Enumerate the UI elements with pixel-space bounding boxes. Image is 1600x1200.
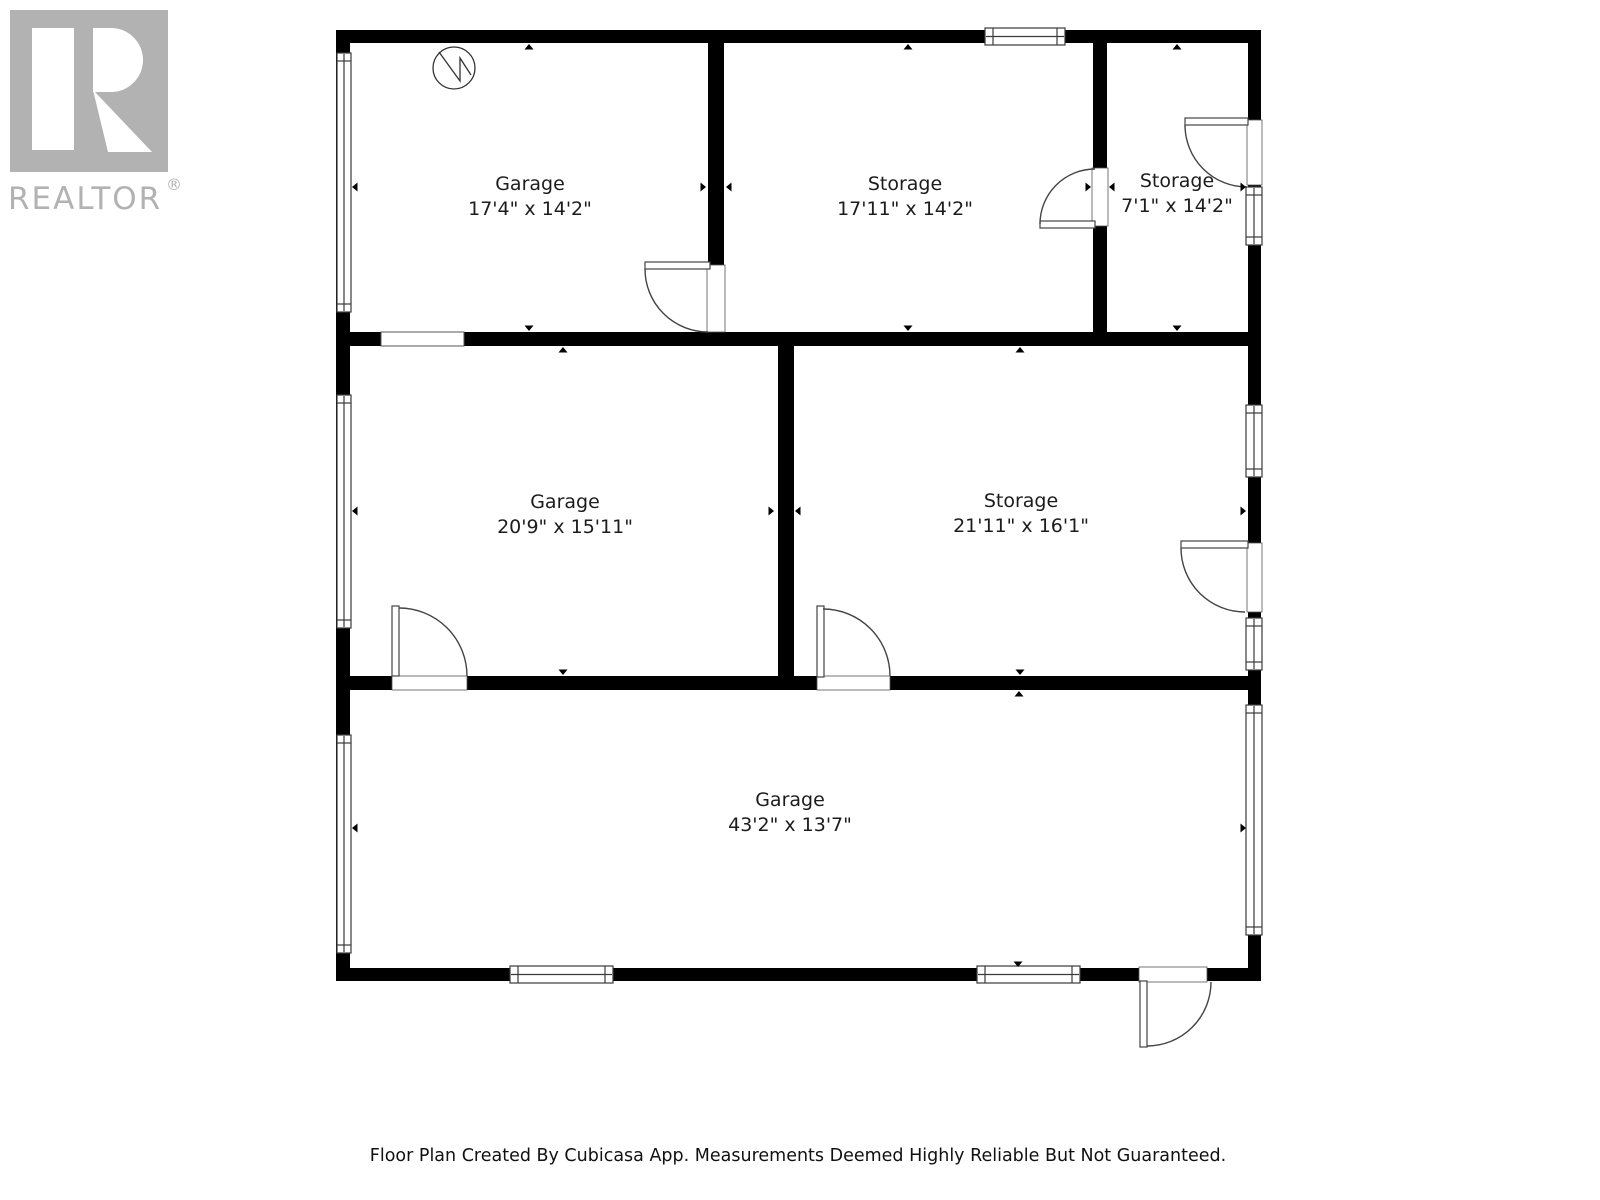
realtor-logo-text: REALTOR xyxy=(8,181,162,217)
door-gap-storage-right xyxy=(1247,120,1262,185)
room-name-label: Storage xyxy=(984,490,1058,512)
wall-divider-row2-row3 xyxy=(336,676,1261,690)
door-gap-mid-storage xyxy=(817,676,890,690)
room-name-label: Storage xyxy=(868,173,942,195)
door-gap-mid-storage-right xyxy=(1247,543,1262,612)
realtor-logo-r-bar xyxy=(32,28,74,150)
window xyxy=(337,53,351,312)
walls xyxy=(336,30,1261,981)
door xyxy=(1040,169,1095,228)
door-gap-top-garage xyxy=(707,265,725,332)
room-labels: Garage 17'4" x 14'2" Storage 17'11" x 14… xyxy=(468,170,1233,836)
door xyxy=(645,262,710,332)
room-dims-label: 21'11" x 16'1" xyxy=(953,515,1089,537)
door-gap-exterior xyxy=(1139,967,1207,982)
room-dims-label: 43'2" x 13'7" xyxy=(728,814,852,836)
window xyxy=(1246,705,1262,935)
window xyxy=(337,395,351,628)
door xyxy=(392,606,467,676)
room-name-label: Storage xyxy=(1140,170,1214,192)
windows xyxy=(337,28,1262,983)
window xyxy=(510,966,613,983)
door-exterior xyxy=(1140,981,1211,1047)
realtor-registered-mark: ® xyxy=(166,175,182,194)
window xyxy=(1246,618,1262,670)
window xyxy=(977,966,1080,983)
room-dims-label: 17'11" x 14'2" xyxy=(837,198,973,220)
door xyxy=(817,606,890,677)
floor-plan-canvas: REALTOR ® xyxy=(0,0,1600,1200)
wall-divider-row1-row2 xyxy=(336,332,1261,346)
room-name-label: Garage xyxy=(530,491,600,513)
window xyxy=(1246,187,1262,245)
room-name-label: Garage xyxy=(495,173,565,195)
door xyxy=(1181,541,1248,612)
realtor-logo: REALTOR ® xyxy=(8,10,182,217)
wall-exterior-bottom xyxy=(336,968,1261,981)
window xyxy=(985,28,1065,45)
wall-divider-garage-storage-mid xyxy=(778,332,794,690)
door-gap-top-storages xyxy=(1092,168,1108,226)
window xyxy=(1246,405,1262,477)
door-gaps xyxy=(392,120,1262,982)
footer-disclaimer: Floor Plan Created By Cubicasa App. Meas… xyxy=(370,1146,1226,1166)
north-indicator-icon xyxy=(433,47,475,89)
window xyxy=(337,735,351,953)
room-dims-label: 7'1" x 14'2" xyxy=(1121,195,1233,217)
doors xyxy=(392,118,1248,1047)
room-name-label: Garage xyxy=(755,789,825,811)
room-dims-label: 17'4" x 14'2" xyxy=(468,198,592,220)
room-dims-label: 20'9" x 15'11" xyxy=(497,516,633,538)
door-gap-mid-garage xyxy=(392,676,467,690)
wall-opening-passage xyxy=(381,332,464,346)
wall-exterior-top xyxy=(336,30,1261,43)
floor-plan-page: REALTOR ® xyxy=(0,0,1600,1200)
